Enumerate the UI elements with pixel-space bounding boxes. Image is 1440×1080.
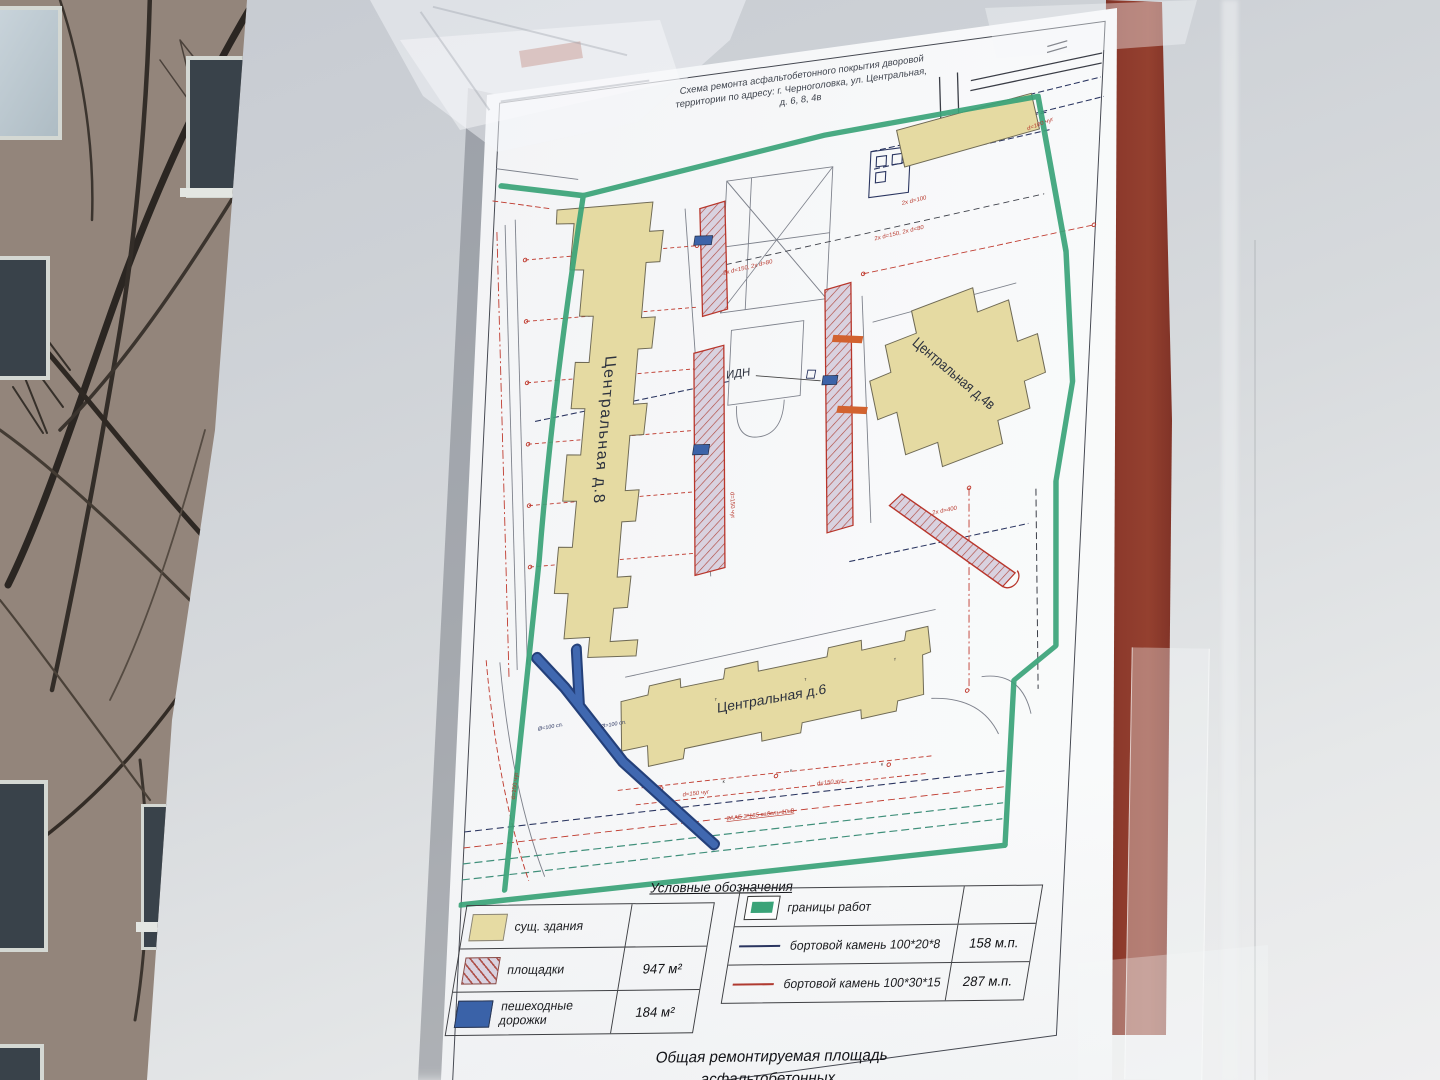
plan-sheet: Схема ремонта асфальтобетонного покрытия… [448, 24, 1107, 1080]
window [0, 256, 50, 380]
annotation-cable: 2ААБ 3*185 кабель 10кВ [726, 808, 794, 822]
legend-value [958, 886, 1042, 924]
legend-row-curb-small: бортовой камень 100*20*8 158 м.п. [728, 923, 1036, 965]
mark-k: к [722, 779, 725, 785]
tape-bottom-right [1078, 945, 1268, 1080]
legend-label: бортовой камень 100*20*8 [789, 936, 942, 952]
annotation-dim-100: 2х d=100 [902, 195, 928, 207]
total-area-note: Общая ремонтируемая площадь асфальтобето… [586, 1044, 949, 1080]
legend-row-paths: пешеходные дорожки 184 м² [446, 989, 700, 1035]
window [0, 6, 62, 140]
annotation-d150: d=150 чуг [682, 790, 710, 799]
annotation-d150: d=150 чуг [729, 491, 736, 520]
legend-value: 158 м.п. [951, 924, 1035, 962]
work-boundary [460, 90, 1087, 919]
work-boundary-swatch [744, 895, 781, 920]
legend-label: бортовой камень 100*30*15 [782, 975, 942, 991]
label-idn: ИДН [726, 367, 751, 382]
legend-row-playgrounds: площадки 947 м² [453, 946, 707, 992]
photo-of-plan-poster: Схема ремонта асфальтобетонного покрытия… [0, 0, 1440, 1080]
legend-label: площадки [506, 962, 565, 977]
curb-navy-swatch [739, 944, 780, 946]
building-top [895, 92, 1041, 168]
legend-value: 184 м² [610, 990, 699, 1033]
legend-label: границы работ [786, 899, 872, 914]
legend-label: пешеходные дорожки [498, 998, 616, 1028]
annotation-dim-150-80: 2х d=150, 2х d=80 [723, 259, 773, 277]
curb-red-swatch [733, 983, 774, 985]
legend-areas-table: сущ. здания площадки 947 м² пешеходные д… [445, 902, 715, 1036]
window [0, 1044, 44, 1080]
existing-buildings-swatch [468, 913, 508, 941]
legend-value [625, 903, 714, 946]
pedestrian-paths-swatch [454, 1000, 494, 1028]
annotation-d250: d=250 чуг [511, 771, 520, 799]
playgrounds-swatch [461, 957, 501, 985]
legend-row-curb-big: бортовой камень 100*30*15 287 м.п. [722, 961, 1030, 1003]
road-outlines [461, 92, 1060, 888]
legend-row-buildings: сущ. здания [460, 903, 713, 948]
wall-seam [1222, 0, 1238, 1080]
legend-lines-table: границы работ бортовой камень 100*20*8 1… [721, 885, 1043, 1004]
annotation-dim-150-80: 2х d=150, 2х d=80 [874, 225, 924, 243]
curb-red-lines [459, 119, 1099, 890]
window [0, 780, 48, 952]
legend-row-boundary: границы работ [735, 886, 1042, 927]
idn-symbol [806, 370, 815, 378]
legend-label: сущ. здания [513, 919, 584, 934]
legend-value: 287 м.п. [945, 962, 1029, 1000]
mark-k: к [881, 761, 884, 767]
legend-value: 947 м² [617, 947, 706, 990]
annotation-dia100: Ø=100 сп. [538, 722, 564, 733]
annotation-dim-400: 2х d=400 [932, 505, 957, 516]
total-line: Общая ремонтируемая площадь асфальтобето… [590, 1044, 949, 1080]
annotation-d150: d=150 чуг [817, 778, 845, 787]
